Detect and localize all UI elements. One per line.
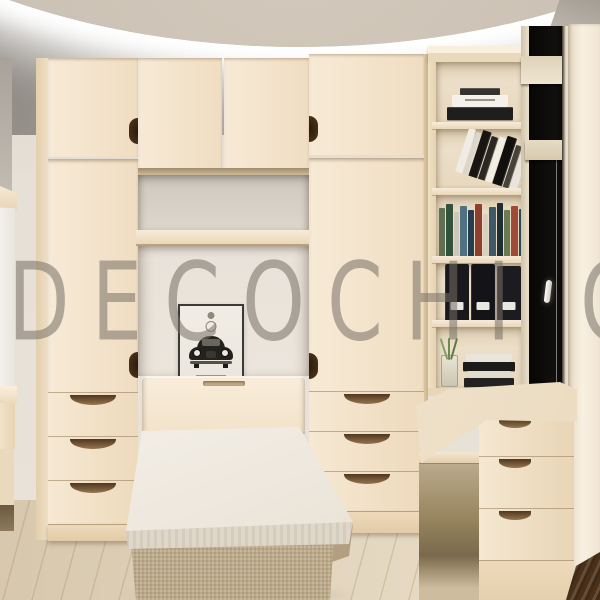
left-unit-desk-edge — [0, 386, 17, 403]
door-handle-notch-icon — [309, 116, 318, 142]
bookshelf-left-stile — [428, 62, 436, 396]
book — [463, 362, 515, 371]
under-desk-space — [419, 452, 479, 600]
shelf-cell-5 — [436, 327, 524, 388]
right-wardrobe-drawer-1 — [309, 391, 424, 432]
left-unit-white-panel — [0, 208, 15, 388]
bedroom-render-scene: DECOCHI O — [0, 0, 600, 600]
door-handle-notch-icon — [309, 353, 318, 379]
right-wardrobe-front — [309, 54, 424, 532]
desk-pedestal-base — [479, 560, 574, 600]
book — [439, 208, 445, 256]
right-wardrobe-tall-door — [309, 158, 424, 392]
glass-vase — [441, 355, 458, 387]
left-unit-drawer — [0, 403, 15, 449]
left-gray-wall — [0, 58, 12, 198]
book — [475, 204, 482, 256]
left-wardrobe-drawer-2 — [48, 436, 138, 481]
left-wardrobe-side-panel — [36, 58, 48, 540]
drawer-handle-notch-icon — [70, 395, 116, 405]
book — [489, 207, 496, 256]
book — [447, 107, 513, 120]
left-wardrobe-plinth — [48, 524, 138, 541]
black-binders — [445, 264, 521, 320]
book — [468, 210, 474, 256]
door-handle-notch-icon — [129, 118, 138, 144]
right-wardrobe-drawer-2 — [309, 431, 424, 472]
car-headlight-right — [221, 349, 229, 357]
drawer-handle-notch-icon — [70, 439, 116, 449]
left-wardrobe-tall-door — [48, 159, 138, 393]
book — [497, 266, 521, 320]
right-wardrobe-upper-door — [309, 54, 424, 155]
shelf-cell-3 — [436, 195, 524, 256]
bridge-cabinet-door-left — [138, 58, 222, 168]
left-wardrobe-drawer-1 — [48, 392, 138, 437]
desk-drawer-3 — [479, 508, 574, 561]
shelf-cell-1 — [436, 62, 524, 122]
desk-drawer-2 — [479, 456, 574, 509]
book — [460, 206, 467, 256]
book — [471, 264, 495, 320]
open-bookshelf — [428, 46, 532, 396]
book — [446, 204, 453, 256]
window-reflection — [556, 160, 557, 392]
book — [483, 214, 488, 256]
plant-stem-icon — [450, 338, 458, 360]
book — [497, 203, 503, 256]
stacked-books — [436, 62, 524, 122]
drawer-handle-notch-icon — [344, 434, 390, 444]
desk-drawer-1 — [479, 416, 574, 457]
car-headlight-left — [193, 349, 201, 357]
car-wheel-left — [194, 364, 199, 368]
drawer-handle-notch-icon — [499, 511, 531, 520]
book — [511, 206, 518, 256]
bridge-cabinet-underside — [138, 168, 309, 175]
book — [460, 88, 500, 95]
leaning-books — [455, 129, 524, 188]
right-wardrobe — [309, 54, 428, 532]
desk-drawer-pedestal — [479, 416, 574, 600]
left-unit-kick-shadow — [0, 505, 14, 531]
drawer-handle-notch-icon — [344, 474, 390, 484]
drawer-handle-notch-icon — [344, 394, 390, 404]
open-niche — [138, 175, 309, 230]
book — [504, 210, 510, 256]
book — [454, 212, 459, 256]
left-wardrobe-drawer-3 — [48, 480, 138, 525]
left-unit-lower-panel — [0, 449, 14, 507]
car-grill — [206, 351, 216, 358]
drawer-handle-notch-icon — [499, 459, 531, 468]
book — [466, 354, 512, 362]
left-wardrobe-front — [48, 58, 138, 540]
car-windshield — [202, 339, 220, 346]
shelf-cell-2 — [436, 129, 524, 188]
book — [452, 95, 508, 107]
book — [445, 264, 469, 320]
panel-pull-slot — [203, 381, 245, 386]
book — [467, 371, 511, 378]
stacked-books-bottom — [463, 354, 515, 387]
door-handle-notch-icon — [129, 352, 138, 378]
poster-crest-ring-icon — [206, 321, 217, 332]
niche-shelf-board — [136, 230, 311, 246]
shelf-cell-4 — [436, 263, 524, 320]
poster-crest-icon — [208, 312, 215, 319]
bed-bridge-unit — [138, 58, 309, 434]
drawer-handle-notch-icon — [70, 483, 116, 493]
murphy-bed-headboard-panel — [142, 376, 305, 434]
bridge-cabinet-door-right — [224, 58, 309, 168]
left-wardrobe-upper-door — [48, 58, 138, 157]
book-row — [439, 203, 521, 256]
bed-alcove-wall — [138, 246, 309, 376]
car-wheel-right — [223, 364, 228, 368]
left-wardrobe — [36, 58, 138, 540]
bookshelf-top-slab — [428, 46, 532, 62]
shelf-bottom-contents — [436, 327, 524, 388]
beetle-car-icon — [189, 336, 233, 368]
